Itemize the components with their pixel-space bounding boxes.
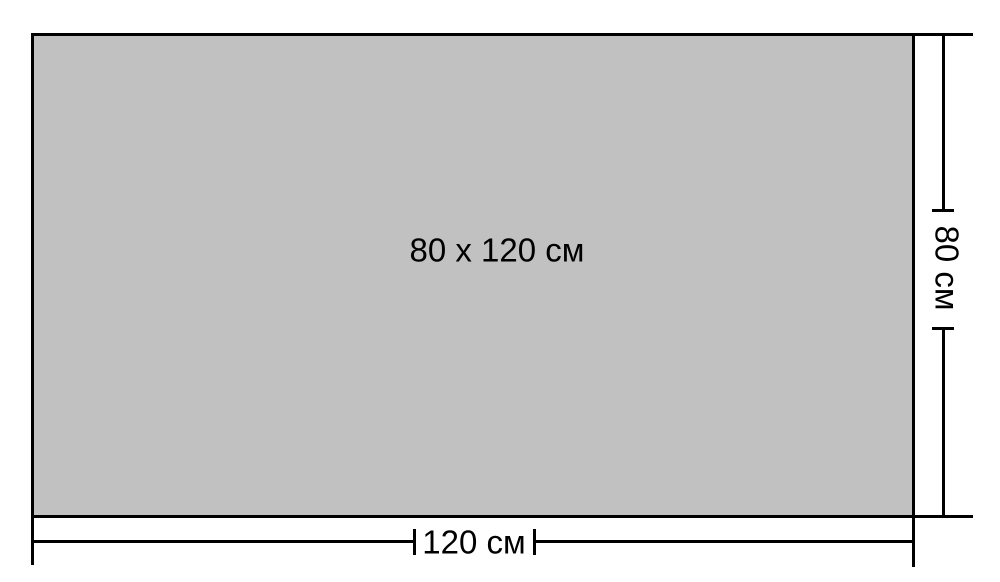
height-dimension-line-bottom — [942, 330, 945, 518]
panel-rectangle — [31, 33, 915, 518]
width-dimension-line-left — [31, 540, 414, 543]
height-dimension-line-top — [942, 36, 945, 209]
height-dimension-label: 80 см — [931, 225, 964, 310]
width-dimension-tick-left — [413, 529, 416, 555]
center-size-label: 80 x 120 см — [410, 234, 585, 267]
dimension-diagram: 120 см 80 см 80 x 120 см — [0, 0, 1000, 582]
width-dimension-label: 120 см — [422, 526, 525, 559]
height-dimension-tick-top — [932, 209, 954, 212]
width-dimension-line-right — [536, 540, 915, 543]
